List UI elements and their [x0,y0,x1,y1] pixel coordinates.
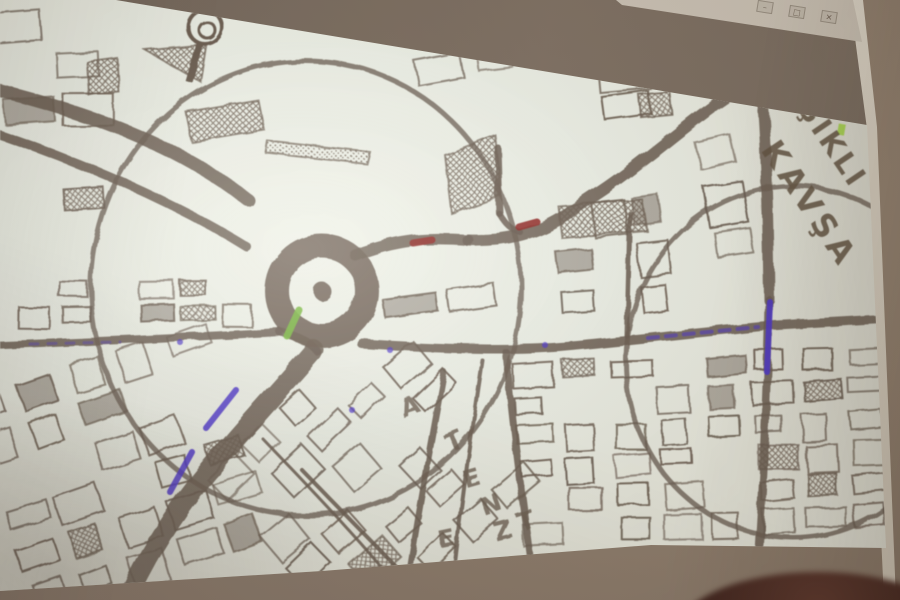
maximize-button-icon[interactable]: □ [788,5,806,19]
photo-of-projected-map: – □ ✕ ATENZET I [0,0,900,600]
close-button-icon[interactable]: ✕ [820,10,838,24]
minimize-button-icon[interactable]: – [756,0,774,14]
